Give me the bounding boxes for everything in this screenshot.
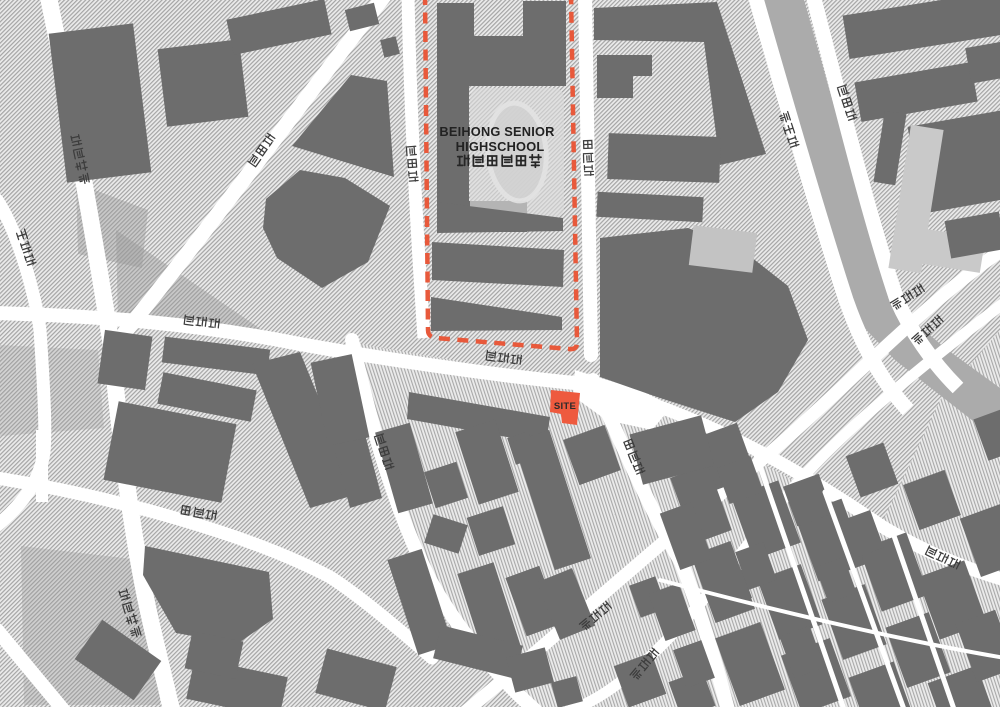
svg-text:SITE: SITE xyxy=(554,401,576,412)
svg-text:HIGHSCHOOL: HIGHSCHOOL xyxy=(456,139,545,154)
svg-text:BEIHONG SENIOR: BEIHONG SENIOR xyxy=(439,124,554,139)
